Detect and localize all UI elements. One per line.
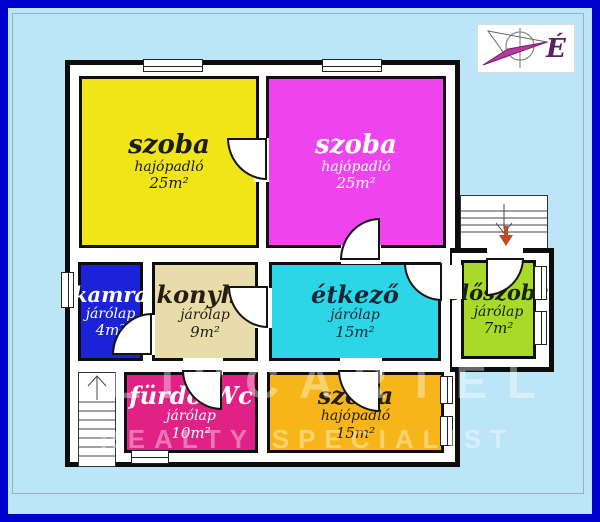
room-area: 9m² — [190, 324, 220, 341]
room-szoba-northeast: szoba hajópadló 25m² — [266, 76, 446, 248]
room-area: 25m² — [149, 175, 188, 192]
north-label: É — [546, 34, 566, 64]
room-name: étkező — [311, 282, 399, 307]
room-floor-type: járólap — [474, 304, 524, 320]
room-name: szoba — [315, 132, 397, 159]
room-floor-type: járólap — [330, 307, 380, 323]
staircase-right — [460, 195, 548, 253]
window-top-right — [322, 59, 382, 72]
room-floor-type: járólap — [166, 408, 216, 424]
window-bottom-furdo — [131, 450, 169, 464]
room-area: 25m² — [336, 175, 375, 192]
room-szoba-northwest: szoba hajópadló 25m² — [79, 76, 259, 248]
room-area: 15m² — [336, 425, 375, 442]
floorplan-canvas: szoba hajópadló 25m² szoba hajópadló 25m… — [0, 0, 600, 522]
room-floor-type: járólap — [180, 307, 230, 323]
compass: É — [477, 24, 575, 73]
compass-rose-icon — [478, 26, 550, 71]
room-name: szoba — [128, 132, 210, 159]
room-floor-type: hajópadló — [134, 159, 203, 175]
window-eloszoba-lower — [534, 311, 547, 345]
room-name: kamra — [73, 284, 148, 306]
window-top-left — [143, 59, 203, 72]
window-eloszoba-upper — [534, 266, 547, 300]
room-area: 10m² — [171, 425, 210, 442]
window-szoba-s-upper — [440, 376, 453, 404]
room-area: 7m² — [484, 320, 514, 337]
room-floor-type: hajópadló — [321, 159, 390, 175]
staircase-left — [78, 372, 116, 467]
window-left-kamra — [61, 272, 74, 308]
room-area: 15m² — [335, 324, 374, 341]
room-floor-type: járólap — [86, 306, 136, 322]
window-szoba-s-lower — [440, 416, 453, 446]
